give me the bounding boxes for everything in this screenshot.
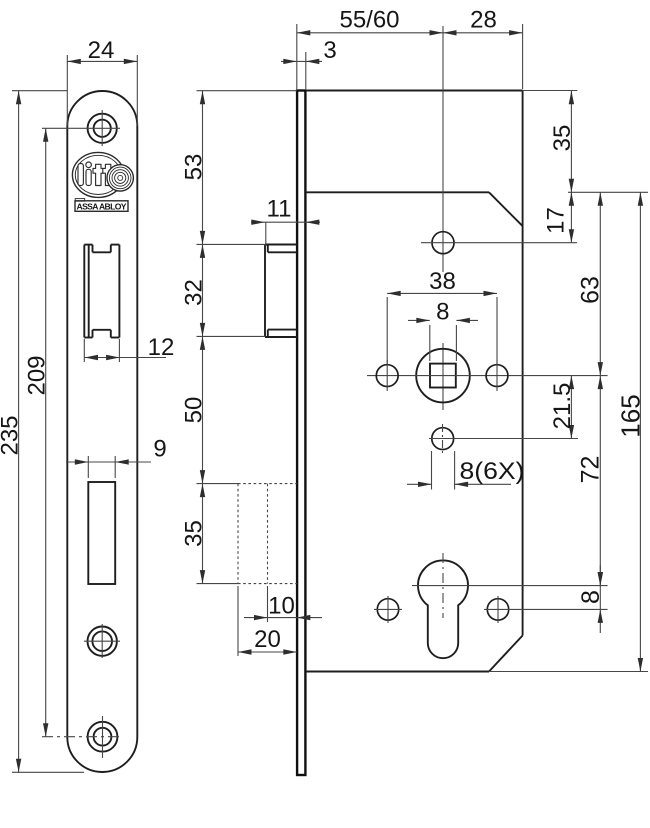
svg-text:63: 63: [576, 276, 604, 304]
svg-text:11: 11: [267, 196, 292, 223]
svg-text:55/60: 55/60: [339, 7, 399, 34]
svg-text:38: 38: [429, 268, 456, 295]
svg-text:72: 72: [576, 456, 604, 484]
svg-text:235: 235: [0, 415, 24, 455]
svg-text:17: 17: [543, 207, 570, 234]
svg-text:3: 3: [323, 37, 336, 64]
svg-text:53: 53: [180, 154, 207, 181]
svg-text:28: 28: [470, 7, 497, 34]
svg-text:21.5: 21.5: [549, 383, 576, 430]
svg-text:8: 8: [436, 298, 449, 325]
svg-text:50: 50: [180, 397, 207, 424]
svg-text:35: 35: [180, 520, 207, 547]
svg-text:32: 32: [180, 279, 207, 306]
svg-text:35: 35: [549, 125, 576, 152]
svg-text:165: 165: [616, 394, 646, 437]
svg-text:8(6X): 8(6X): [460, 458, 525, 485]
svg-text:ASSA ABLOY: ASSA ABLOY: [77, 202, 127, 212]
svg-text:8: 8: [577, 590, 605, 604]
svg-text:10: 10: [268, 593, 295, 620]
svg-text:24: 24: [88, 37, 115, 64]
svg-text:12: 12: [148, 334, 175, 361]
svg-text:209: 209: [24, 355, 51, 395]
svg-text:9: 9: [153, 436, 166, 463]
svg-text:20: 20: [254, 626, 281, 653]
